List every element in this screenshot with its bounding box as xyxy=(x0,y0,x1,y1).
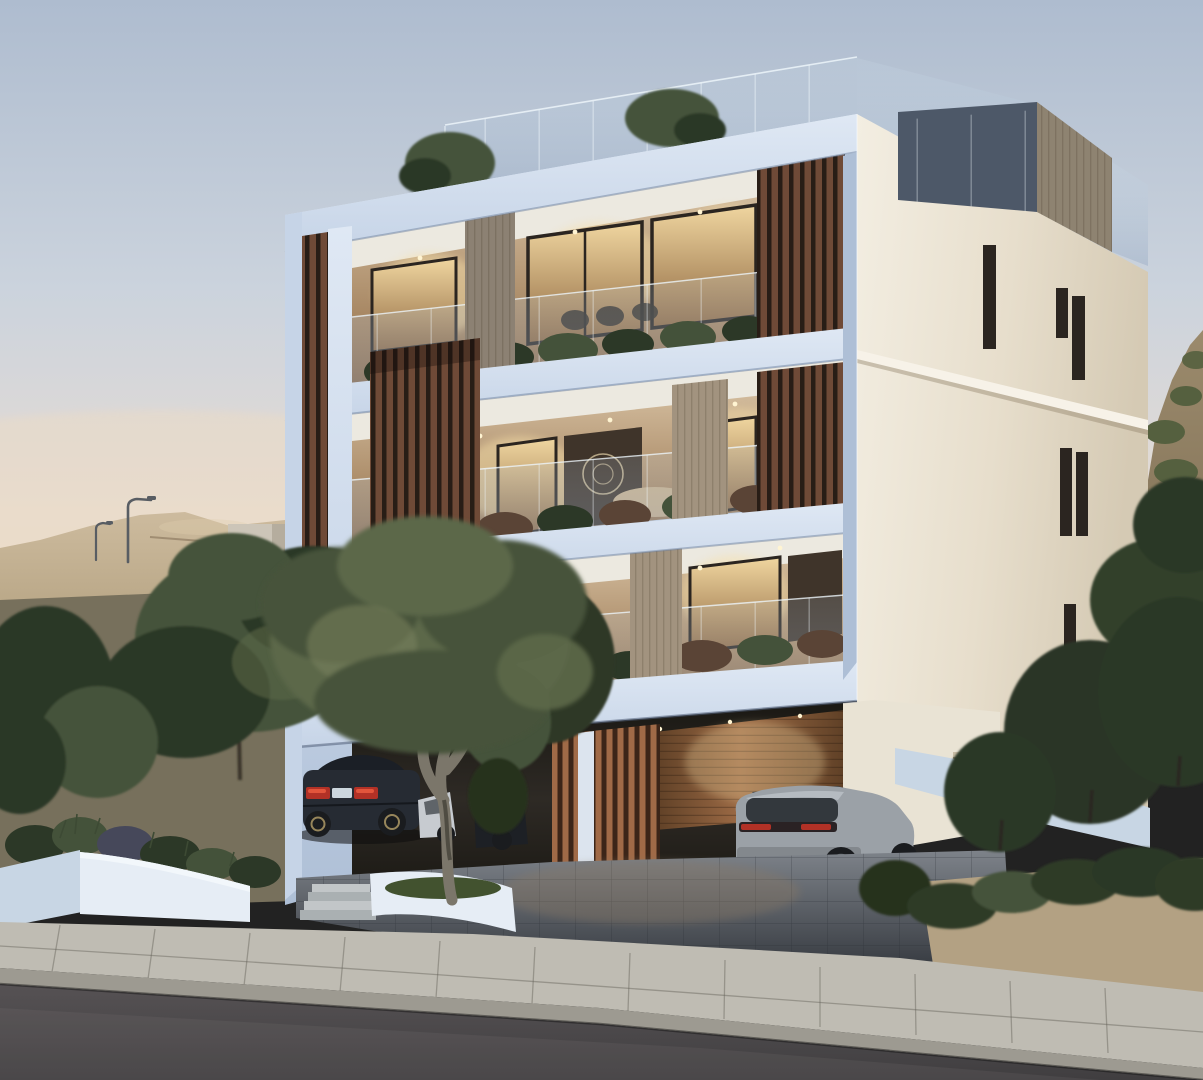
license-plate xyxy=(332,788,352,798)
slit-window xyxy=(1060,448,1072,536)
carport-column xyxy=(578,731,594,883)
planter-grass xyxy=(385,877,501,899)
scene-canvas xyxy=(0,0,1203,1080)
slat-screen-mid-right xyxy=(757,362,845,512)
step xyxy=(308,892,372,901)
step xyxy=(300,910,376,920)
rear-window xyxy=(746,798,838,822)
corner-pier xyxy=(843,152,857,680)
architectural-rendering xyxy=(0,0,1203,1080)
slat-screen-top-right xyxy=(757,154,845,339)
wheel xyxy=(305,811,331,837)
taillight xyxy=(741,824,771,830)
slit-window xyxy=(1076,452,1088,536)
step xyxy=(304,901,374,910)
slit-window xyxy=(983,245,996,349)
slit-window xyxy=(1056,288,1068,338)
wheel xyxy=(378,808,406,836)
step xyxy=(312,884,370,892)
slit-window xyxy=(1072,296,1085,380)
taillight xyxy=(801,824,831,830)
